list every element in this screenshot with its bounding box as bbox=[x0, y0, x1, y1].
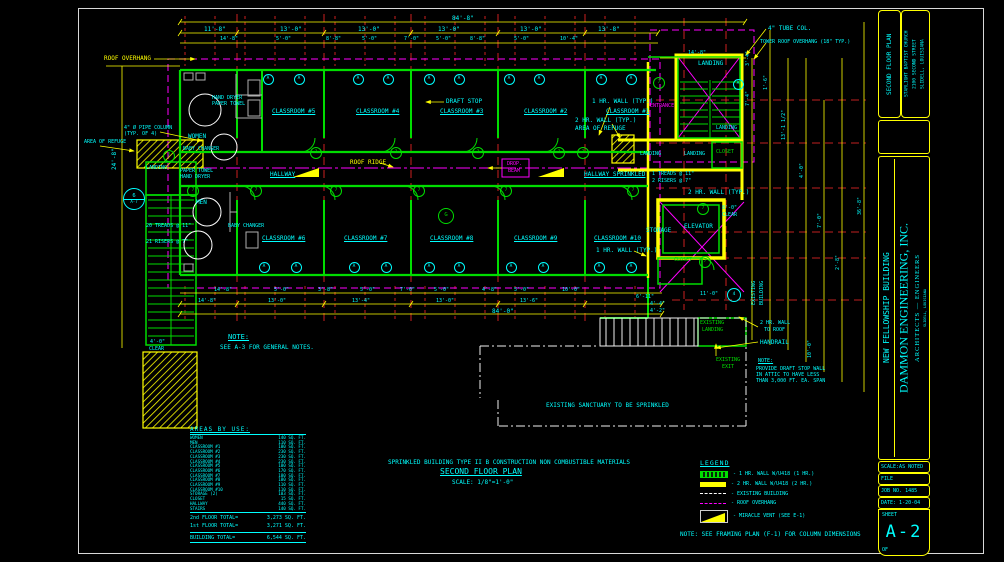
legend: LEGEND - 1 HR. WALL W/U418 (1 HR.)- 2 HR… bbox=[700, 459, 870, 523]
plan-label: HANDRAIL bbox=[760, 340, 789, 346]
plan-label: LANDING bbox=[702, 328, 723, 333]
job-value: JOB NO. 1485 bbox=[879, 488, 917, 494]
plan-label: CLASSROOM #6 bbox=[262, 236, 305, 242]
plan-label: TOWER ROOF OVERHANG (18" TYP.) bbox=[760, 40, 850, 45]
areas-value: 3,273 SQ. FT. bbox=[267, 514, 306, 522]
areas-table: AREAS BY USE: WOMEN140 SQ. FT.MEN110 SQ.… bbox=[190, 426, 306, 543]
plan-label: EXISTING bbox=[752, 281, 757, 305]
areas-building: BUILDING TOTAL=6,544 SQ. FT. bbox=[190, 532, 306, 543]
plan-label: NOTE: SEE FRAMING PLAN (F-1) FOR COLUMN … bbox=[680, 532, 861, 538]
areas-label: BUILDING TOTAL= bbox=[190, 535, 235, 541]
plan-label: 8'-8" bbox=[326, 37, 341, 42]
plan-label: 8'-0" bbox=[722, 206, 737, 211]
plan-label: ENTRANCE bbox=[650, 104, 674, 109]
tag-bubble: A bbox=[733, 79, 744, 90]
plan-label: 13'-4" bbox=[352, 299, 370, 304]
plan-label: 5'-0" bbox=[362, 37, 377, 42]
areas-rows: WOMEN140 SQ. FT.MEN110 SQ. FT.CLASSROOM … bbox=[190, 436, 306, 511]
plan-label: SEE A-3 FOR GENERAL NOTES. bbox=[220, 345, 314, 351]
hr1-symbol bbox=[700, 471, 728, 478]
plan-label: 5'-0" bbox=[276, 37, 291, 42]
plan-label: DRAFT STOP bbox=[446, 99, 482, 105]
plan-label: CLOSET bbox=[716, 150, 734, 155]
plan-label: BUILDING bbox=[760, 281, 765, 305]
tag-bubble: 7 bbox=[577, 147, 589, 159]
titleblock-revision-box bbox=[878, 120, 930, 154]
plan-label: CLASSROOM #10 bbox=[594, 236, 641, 242]
legend-item-label: - MIRACLE VENT (SEE E-1) bbox=[733, 513, 805, 519]
plan-label: ELEVATOR bbox=[684, 224, 713, 230]
titleblock-firm-box: NEW FELLOWSHIP BUILDING DAMMON ENGINEERI… bbox=[878, 156, 930, 460]
legend-item: - MIRACLE VENT (SEE E-1) bbox=[700, 510, 870, 523]
titleblock-sheet-title-box: SECOND FLOOR PLAN bbox=[878, 10, 901, 118]
plan-label: EXISTING bbox=[716, 358, 740, 363]
plan-label: 13'-0" bbox=[438, 27, 460, 33]
plan-label: LANDING bbox=[698, 61, 723, 67]
scale-value: SCALE:AS NOTED bbox=[879, 464, 923, 470]
section-marker: 6A-7 bbox=[123, 188, 145, 210]
plan-label: 20 TREADS @ 11" bbox=[146, 224, 191, 229]
plan-label: TO ROOF bbox=[764, 328, 785, 333]
plan-label: 4'-2" bbox=[650, 309, 665, 314]
areas-value: 140 SQ. FT. bbox=[278, 507, 306, 512]
plan-label: 4'-4" bbox=[650, 302, 665, 307]
plan-label: 13'-0" bbox=[268, 299, 286, 304]
firm-role: ARCHITECTS — ENGINEERS bbox=[913, 157, 922, 459]
tag-bubble: 7 bbox=[250, 185, 262, 197]
plan-label: WOMEN bbox=[188, 134, 206, 140]
plan-label: MEN bbox=[196, 200, 207, 206]
plan-label: 7'-4" bbox=[746, 91, 751, 106]
plan-label: 8'-8" bbox=[470, 37, 485, 42]
plan-label: SCALE: 1/8"=1'-0" bbox=[452, 480, 513, 486]
plan-label: 84'-8" bbox=[452, 16, 474, 22]
plan-label: 21 RISERS @ 7" bbox=[146, 240, 188, 245]
plan-label: 6'-11" bbox=[636, 295, 654, 300]
legend-item: - EXISTING BUILDING bbox=[700, 491, 870, 497]
plan-label: 5'-0" bbox=[434, 288, 449, 293]
areas-total-row: 2nd FLOOR TOTAL=3,273 SQ. FT. bbox=[190, 514, 306, 522]
areas-value: 6,544 SQ. FT. bbox=[267, 535, 306, 541]
section-marker-sheet: A-7 bbox=[124, 199, 144, 204]
tag-bubble: A bbox=[424, 74, 435, 85]
plan-label: STORAGE bbox=[646, 228, 671, 234]
plan-label: 13'-6" bbox=[520, 299, 538, 304]
tag-bubble: A bbox=[506, 262, 517, 273]
legend-item-label: - 1 HR. WALL W/U418 (1 HR.) bbox=[733, 471, 814, 477]
tag-bubble: A bbox=[353, 74, 364, 85]
job-field: JOB NO. 1485 bbox=[878, 485, 930, 497]
plan-label: BABY CHANGER bbox=[183, 147, 219, 152]
plan-label: SPRINKLED BUILDING TYPE II B CONSTRUCTIO… bbox=[388, 460, 630, 466]
tag-bubble: 7 bbox=[390, 147, 402, 159]
client-line-2: 2100 SECOND STREET bbox=[911, 11, 919, 117]
scale-field: SCALE:AS NOTED bbox=[878, 461, 930, 473]
roof-symbol bbox=[700, 503, 726, 504]
plan-label: 2 HR. WALL (TYP.) bbox=[688, 190, 749, 196]
tag-bubble: A bbox=[454, 74, 465, 85]
sheet-number-box: SHEET A-2 OF bbox=[878, 509, 930, 556]
legend-item: - ROOF OVERHANG bbox=[700, 500, 870, 506]
plan-label: LANDING bbox=[146, 166, 167, 171]
plan-label: 1'-6" bbox=[764, 75, 769, 90]
tag-bubble: A bbox=[294, 74, 305, 85]
plan-label: LANDING bbox=[640, 152, 661, 157]
plan-label: 7'-0" bbox=[818, 213, 823, 228]
plan-label: HALLWAY bbox=[270, 172, 295, 178]
tag-bubble: A bbox=[349, 262, 360, 273]
plan-label: 14'-8" bbox=[214, 288, 232, 293]
tag-bubble: A bbox=[424, 262, 435, 273]
tag-bubble: 7 bbox=[699, 256, 711, 268]
plan-label: EXISTING SANCTUARY TO BE SPRINKLED bbox=[546, 403, 669, 409]
plan-label: CLASSROOM #8 bbox=[430, 236, 473, 242]
legend-item-label: - 2 HR. WALL W/U418 (2 HR.) bbox=[731, 481, 812, 487]
plan-label: 36'-8" bbox=[858, 197, 863, 215]
plan-label: 13'-0" bbox=[520, 27, 542, 33]
plan-label: 7'-0" bbox=[404, 37, 419, 42]
legend-item: - 2 HR. WALL W/U418 (2 HR.) bbox=[700, 481, 870, 487]
firm-name: DAMMON ENGINEERING, INC. bbox=[895, 157, 913, 459]
plan-label: 14'-8" bbox=[198, 299, 216, 304]
project-name: NEW FELLOWSHIP BUILDING bbox=[880, 157, 893, 459]
legend-item-label: - EXISTING BUILDING bbox=[731, 491, 788, 497]
plan-label: ROOF OVERHANG bbox=[104, 56, 151, 62]
plan-label: NOTE: bbox=[228, 334, 249, 341]
tag-bubble: 7 bbox=[187, 185, 199, 197]
plan-label: 5'-0" bbox=[360, 288, 375, 293]
tag-bubble: 7 bbox=[163, 150, 175, 162]
areas-label: STAIRS bbox=[190, 507, 205, 512]
plan-label: 5'-0" bbox=[514, 37, 529, 42]
legend-item-label: - ROOF OVERHANG bbox=[731, 500, 776, 506]
plan-label: EXISTING bbox=[700, 321, 724, 326]
of-label: OF bbox=[882, 547, 888, 553]
plan-label: SECOND FLOOR PLAN bbox=[440, 468, 522, 476]
plan-label: AREA OF REFUGE bbox=[84, 140, 126, 145]
plan-label: ROOF RIDGE bbox=[350, 160, 386, 166]
tag-bubble: 7 bbox=[310, 147, 322, 159]
drawing-sheet: ROOF OVERHANG84'-8"11'-8"13'-0"13'-0"13'… bbox=[0, 0, 1004, 562]
date-value: DATE: 1-20-04 bbox=[879, 500, 920, 506]
plan-label: 10'-4" bbox=[560, 37, 578, 42]
plan-label: 2 HR. WALL (TYP.) bbox=[575, 118, 636, 124]
tag-bubble: A bbox=[454, 262, 465, 273]
client-line-1: STARLIGHT BAPTIST CHURCH bbox=[903, 11, 911, 117]
sheet-label: SHEET bbox=[882, 512, 897, 518]
plan-label: 13'-1 1/2" bbox=[782, 110, 787, 140]
plan-label: CLASSROOM #9 bbox=[514, 236, 557, 242]
plan-label: 1 TREADS @ 11" bbox=[652, 172, 694, 177]
plan-label: 14'-8" bbox=[220, 37, 238, 42]
plan-label: 4" TUBE COL. bbox=[768, 26, 811, 32]
hr2-symbol bbox=[700, 482, 726, 487]
plan-label: CLASSROOM #1 bbox=[606, 109, 649, 115]
plan-label: (TYP. OF 4) bbox=[124, 132, 157, 137]
plan-label: AREA OF REFUGE bbox=[575, 126, 626, 132]
plan-label: 2 HR. WALL bbox=[760, 321, 790, 326]
plan-label: 13'-8" bbox=[598, 27, 620, 33]
areas-divider bbox=[190, 512, 306, 513]
tag-bubble: 7 bbox=[653, 77, 665, 89]
plan-label: 1 HR. WALL (TYP.) bbox=[596, 248, 657, 254]
plan-label: 84'-0" bbox=[492, 309, 514, 315]
exist-symbol bbox=[700, 493, 726, 494]
plan-label: 11'-0" bbox=[700, 292, 718, 297]
tag-bubble: A bbox=[381, 262, 392, 273]
plan-label: 3'-4" bbox=[746, 51, 751, 66]
plan-label: CLASSROOM #5 bbox=[272, 109, 315, 115]
tag-bubble: A bbox=[626, 74, 637, 85]
plan-label: 10'-0" bbox=[808, 340, 813, 358]
plan-label: 4'-0" bbox=[800, 163, 805, 178]
plan-label: CLASSROOM #2 bbox=[524, 109, 567, 115]
plan-label: HAND DRYER bbox=[180, 175, 210, 180]
plan-label: THAN 3,000 FT. EA. SPAN bbox=[756, 379, 825, 384]
areas-label: 2nd FLOOR TOTAL= bbox=[190, 514, 238, 522]
plan-label: DROP. bbox=[507, 162, 522, 167]
tag-bubble: 7 bbox=[553, 147, 565, 159]
plan-label: 13'-0" bbox=[280, 27, 302, 33]
plan-label: CLOSET bbox=[674, 258, 692, 263]
plan-label: BEAM bbox=[508, 169, 520, 174]
tag-bubble: A bbox=[594, 262, 605, 273]
titleblock-sheet-title: SECOND FLOOR PLAN bbox=[879, 11, 900, 117]
tag-bubble: A bbox=[534, 74, 545, 85]
plan-label: 1 HR. WALL (TYP.) bbox=[592, 99, 653, 105]
plan-label: BABY CHANGER bbox=[228, 224, 264, 229]
file-value: FILE bbox=[879, 476, 893, 482]
plan-label: 2 RISERS @ 7" bbox=[652, 179, 691, 184]
plan-label: 14'-8" bbox=[688, 51, 706, 56]
tag-bubble: A bbox=[596, 74, 607, 85]
plan-label: HALLWAY SPRINKLED bbox=[584, 172, 645, 178]
client-line-3: SLIDELL, LOUISIANA bbox=[919, 11, 927, 117]
plan-label: 5'-0" bbox=[436, 37, 451, 42]
file-field: FILE bbox=[878, 473, 930, 485]
tag-bubble: A bbox=[626, 262, 637, 273]
legend-title: LEGEND bbox=[700, 459, 870, 467]
plan-label: 10'-0" bbox=[562, 288, 580, 293]
areas-label: 1st FLOOR TOTAL= bbox=[190, 522, 238, 530]
tag-bubble: 7 bbox=[500, 185, 512, 197]
plan-label: LANDING bbox=[684, 152, 705, 157]
plan-label: NOTE: bbox=[758, 359, 773, 364]
tag-bubble: A bbox=[538, 262, 549, 273]
areas-value: 3,271 SQ. FT. bbox=[267, 522, 306, 530]
plan-label: LANDING bbox=[716, 126, 737, 131]
tag-bubble: 7 bbox=[627, 185, 639, 197]
areas-row: STAIRS140 SQ. FT. bbox=[190, 507, 306, 512]
legend-items: - 1 HR. WALL W/U418 (1 HR.)- 2 HR. WALL … bbox=[700, 471, 870, 523]
plan-label: 11'-8" bbox=[204, 27, 226, 33]
plan-label: CLEAR bbox=[722, 213, 737, 218]
plan-label: CLEAR bbox=[149, 347, 164, 352]
vent-symbol bbox=[700, 510, 728, 523]
tag-bubble: G bbox=[438, 208, 454, 224]
tag-bubble: A bbox=[263, 74, 274, 85]
plan-label: 5'-0" bbox=[274, 288, 289, 293]
titleblock-client-box: STARLIGHT BAPTIST CHURCH 2100 SECOND STR… bbox=[901, 10, 930, 118]
plan-label: 24'-8" bbox=[112, 148, 118, 170]
tag-bubble: A bbox=[259, 262, 270, 273]
plan-label: PAPER TOWEL bbox=[212, 102, 245, 107]
areas-title: AREAS BY USE: bbox=[190, 426, 306, 435]
tag-bubble: A bbox=[383, 74, 394, 85]
tag-bubble: 7 bbox=[472, 147, 484, 159]
sheet-number: A-2 bbox=[879, 522, 929, 542]
plan-label: EXIT bbox=[722, 365, 734, 370]
plan-label: 2'-8" bbox=[836, 255, 841, 270]
plan-label: 13'-0" bbox=[358, 27, 380, 33]
plan-label: 3'-8" bbox=[318, 288, 333, 293]
plan-label: 4'-0" bbox=[150, 340, 165, 345]
plan-label: 7'-0" bbox=[400, 288, 415, 293]
legend-item: - 1 HR. WALL W/U418 (1 HR.) bbox=[700, 471, 870, 478]
tag-bubble: 7 bbox=[697, 203, 709, 215]
tag-bubble: A bbox=[291, 262, 302, 273]
plan-label: 4'-8" bbox=[482, 288, 497, 293]
date-field: DATE: 1-20-04 bbox=[878, 497, 930, 509]
plan-label: CLASSROOM #7 bbox=[344, 236, 387, 242]
tag-bubble: 7 bbox=[330, 185, 342, 197]
firm-address: SLIDELL, LOUISIANA bbox=[922, 157, 928, 459]
tag-bubble: 4 bbox=[727, 288, 741, 302]
areas-totals: 2nd FLOOR TOTAL=3,273 SQ. FT.1st FLOOR T… bbox=[190, 514, 306, 530]
plan-label: CLASSROOM #4 bbox=[356, 109, 399, 115]
plan-label: CLASSROOM #3 bbox=[440, 109, 483, 115]
plan-label: 5'-0" bbox=[514, 288, 529, 293]
tag-bubble: 7 bbox=[413, 185, 425, 197]
areas-total-row: 1st FLOOR TOTAL=3,271 SQ. FT. bbox=[190, 522, 306, 530]
plan-label: 13'-0" bbox=[436, 299, 454, 304]
tag-bubble: A bbox=[504, 74, 515, 85]
